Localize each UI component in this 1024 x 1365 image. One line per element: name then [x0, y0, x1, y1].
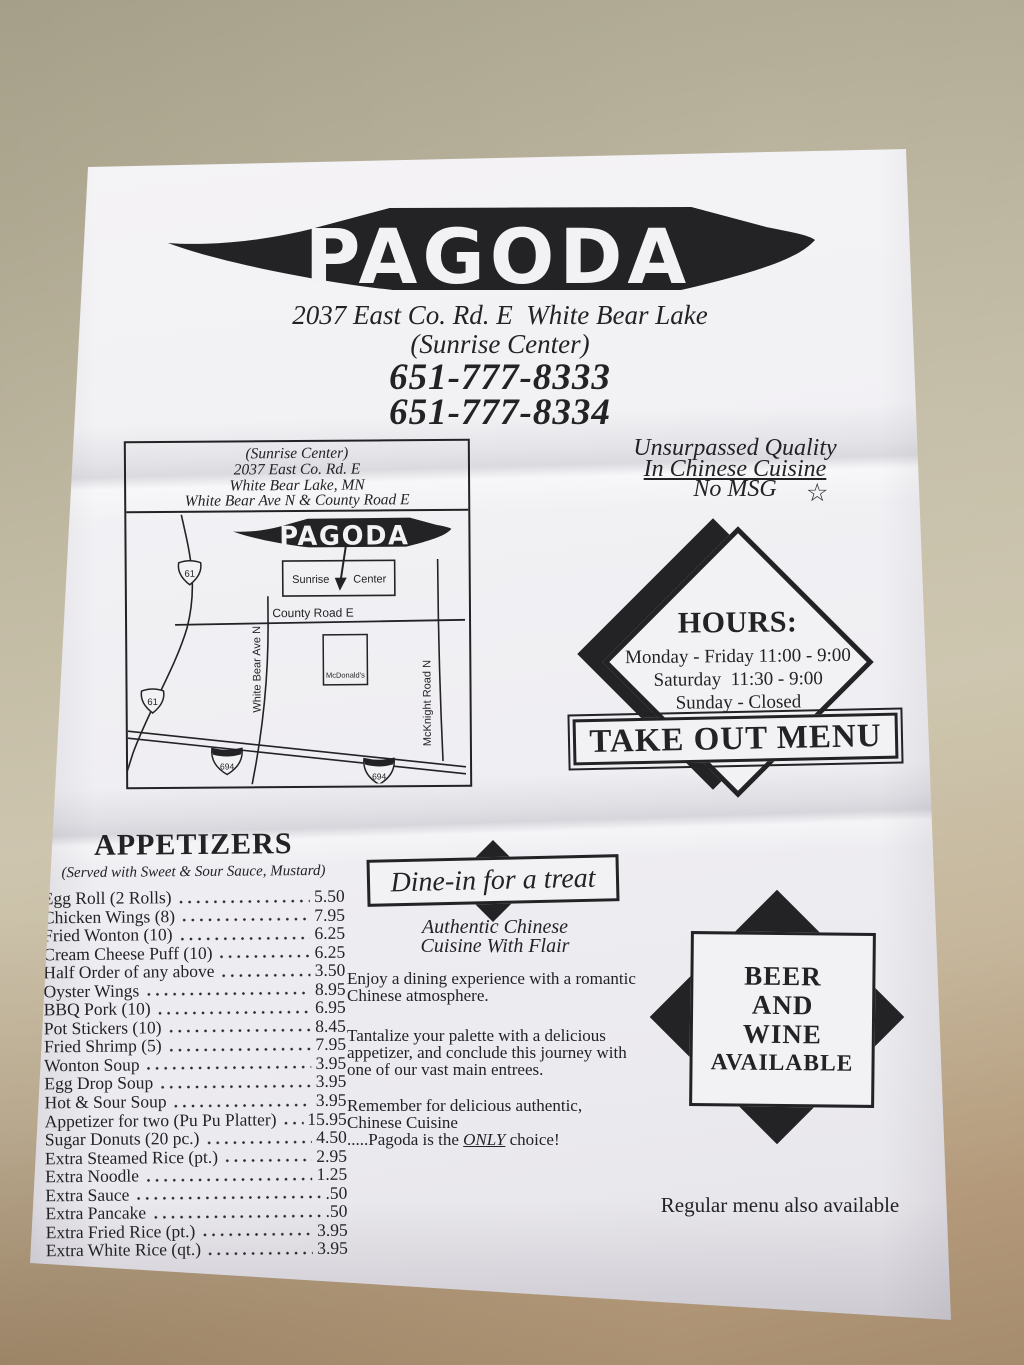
dot-leader: [180, 905, 310, 925]
route-61-shield: 61: [141, 689, 164, 713]
beer-wine-line: BEER: [744, 961, 822, 991]
take-out-menu-banner: TAKE OUT MENU: [573, 713, 899, 766]
road-i694: [128, 729, 466, 769]
take-out-menu-label: TAKE OUT MENU: [589, 717, 882, 760]
menu-item-name: Extra White Rice (qt.): [46, 1239, 201, 1261]
photo-of-takeout-menu: PAGODA 2037 East Co. Rd. E White Bear La…: [0, 0, 1024, 1365]
route-694-number: 694: [372, 771, 387, 781]
paragraph-line: one of our vast main entrees.: [347, 1062, 647, 1079]
closing-text: choice!: [505, 1130, 559, 1149]
dot-leader: [177, 923, 310, 943]
dot-leader: [223, 1146, 313, 1165]
dot-leader: [151, 1201, 322, 1221]
beer-wine-sign: BEER AND WINE AVAILABLE: [689, 931, 876, 1108]
dot-leader: [156, 997, 312, 1017]
dot-leader: [176, 886, 310, 906]
dot-leader: [281, 1109, 303, 1128]
route-61-shield: 61: [178, 561, 201, 585]
closing-text: .....Pagoda is the: [347, 1130, 463, 1149]
mcdonalds-label: McDonald's: [326, 671, 365, 680]
sunrise-label: Sunrise: [292, 574, 329, 586]
road-i694: [128, 736, 466, 776]
quality-tagline: Unsurpassed Quality In Chinese Cuisine N…: [600, 438, 870, 500]
beer-wine-line: AVAILABLE: [711, 1048, 854, 1078]
paragraph-line: Chinese atmosphere.: [347, 988, 647, 1005]
white-bear-ave-label: White Bear Ave N: [251, 626, 264, 713]
appetizers-section: APPETIZERS (Served with Sweet & Sour Sau…: [42, 827, 348, 1260]
dot-leader: [166, 1016, 311, 1036]
route-61-number: 61: [184, 569, 195, 580]
county-road-label: County Road E: [272, 606, 353, 621]
dot-leader: [204, 1127, 312, 1146]
closing-emphasis: ONLY: [463, 1130, 505, 1149]
dot-leader: [158, 1071, 312, 1091]
dine-in-tagline-line: Cuisine With Flair: [360, 937, 630, 956]
dot-leader: [219, 960, 310, 979]
star-icon: ☆: [806, 478, 828, 508]
dot-leader: [144, 1164, 313, 1184]
dine-in-tagline: Authentic Chinese Cuisine With Flair: [360, 918, 630, 955]
menu-paper: PAGODA 2037 East Co. Rd. E White Bear La…: [0, 0, 1024, 1365]
beer-wine-line: WINE: [743, 1019, 822, 1049]
map-address-line: White Bear Ave N & County Road E: [126, 492, 468, 510]
center-label: Center: [353, 573, 386, 585]
map-arrow-head: [335, 578, 347, 591]
dine-in-banner: Dine-in for a treat: [366, 854, 619, 907]
hours-block: HOURS: Monday - Friday 11:00 - 9:00 Satu…: [607, 605, 868, 716]
menu-item-row: Extra White Rice (qt.) 3.95: [46, 1238, 348, 1259]
route-694-shield: 694: [364, 758, 395, 784]
phone-number-2: 651-777-8334: [200, 391, 800, 434]
dot-leader: [200, 1220, 313, 1240]
dot-leader: [217, 942, 310, 961]
dot-leader: [171, 1090, 312, 1110]
location-map: (Sunrise Center) 2037 East Co. Rd. E Whi…: [124, 439, 472, 789]
route-61-number: 61: [147, 697, 158, 708]
dine-in-banner-label: Dine-in for a treat: [390, 862, 596, 899]
dine-in-tagline-line: Authentic Chinese: [360, 918, 630, 937]
map-address-block: (Sunrise Center) 2037 East Co. Rd. E Whi…: [126, 445, 468, 511]
route-694-shield: 694: [212, 748, 243, 774]
road-county-e: [175, 620, 465, 625]
hours-line: Monday - Friday 11:00 - 9:00: [608, 644, 868, 670]
quality-line-3: No MSG: [600, 479, 870, 500]
route-694-number: 694: [220, 761, 235, 771]
appetizers-title: APPETIZERS: [42, 827, 344, 864]
footer-note: Regular menu also available: [640, 1193, 920, 1218]
hours-line: Sunday - Closed: [608, 690, 868, 716]
beer-wine-line: AND: [752, 990, 814, 1020]
dot-leader: [206, 1238, 313, 1257]
dot-leader: [134, 1183, 321, 1203]
hours-title: HOURS:: [607, 605, 867, 642]
street-map-drawing: County Road E White Bear Ave N McKnight …: [126, 511, 466, 785]
paragraph-line: .....Pagoda is the ONLY choice!: [347, 1132, 647, 1149]
pagoda-roof-logo: PAGODA: [166, 199, 818, 307]
dot-leader: [144, 979, 311, 999]
road-mcknight: [438, 559, 443, 761]
dot-leader: [144, 1053, 311, 1073]
menu-item-price: 3.95: [317, 1238, 348, 1259]
map-pagoda-logo: PAGODA: [233, 517, 452, 552]
pagoda-logo-text: PAGODA: [305, 212, 691, 301]
mcknight-road-label: McKnight Road N: [421, 660, 434, 746]
appetizers-list: Egg Roll (2 Rolls) 5.50 Chicken Wings (8…: [43, 886, 348, 1260]
map-pagoda-logo-text: PAGODA: [279, 521, 410, 552]
restaurant-address: 2037 East Co. Rd. E White Bear Lake: [200, 300, 800, 331]
dine-in-paragraph: Enjoy a dining experience with a romanti…: [347, 971, 647, 1005]
dot-leader: [167, 1034, 312, 1054]
dine-in-paragraph: Tantalize your palette with a delicious …: [347, 1028, 647, 1078]
appetizers-subtitle: (Served with Sweet & Sour Sauce, Mustard…: [42, 863, 344, 883]
dine-in-paragraph: Remember for delicious authentic, Chines…: [347, 1098, 647, 1148]
hours-line: Saturday 11:30 - 9:00: [608, 667, 868, 693]
